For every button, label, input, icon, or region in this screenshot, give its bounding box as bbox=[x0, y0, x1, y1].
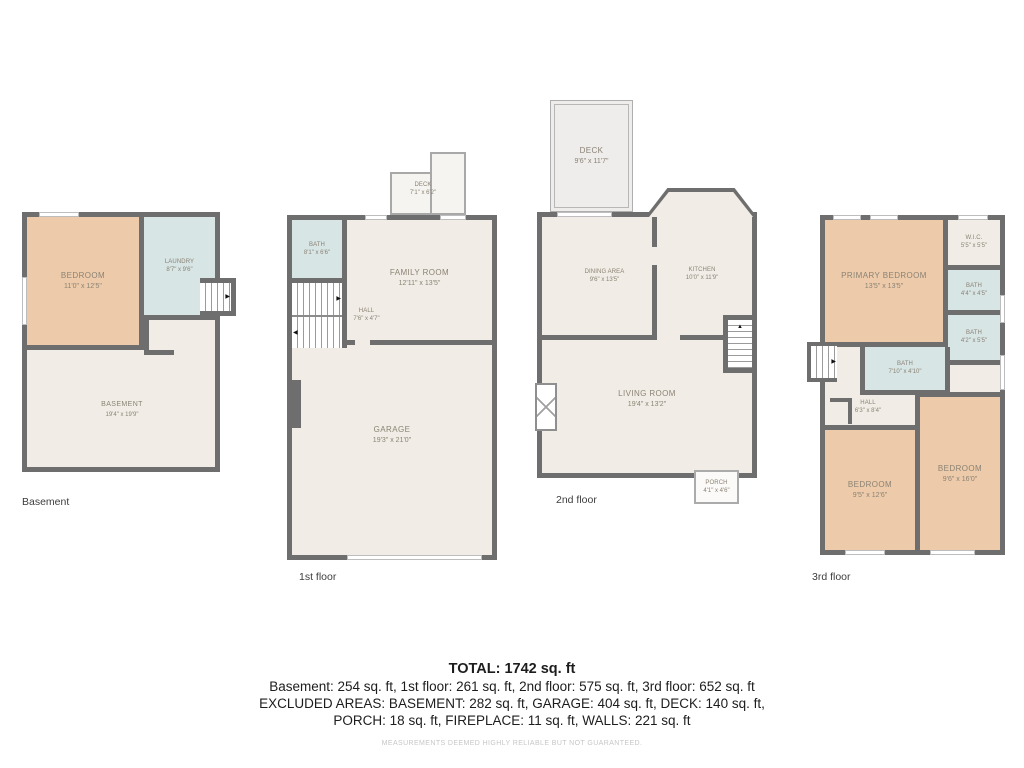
window-opening bbox=[845, 550, 885, 555]
window-opening bbox=[1000, 355, 1005, 390]
room-name: BASEMENT bbox=[32, 400, 212, 410]
room-label: PORCH 4'1" x 4'6" bbox=[703, 480, 729, 495]
room-label: BATH 7'10" x 4'10" bbox=[889, 361, 922, 376]
room-name: LAUNDRY bbox=[165, 259, 194, 266]
room-dims: 9'6" x 16'0" bbox=[938, 475, 982, 484]
room-primary-bedroom: PRIMARY BEDROOM 13'5" x 13'5" bbox=[825, 220, 948, 347]
room-name: DINING AREA bbox=[552, 269, 657, 276]
room-name: PRIMARY BEDROOM bbox=[841, 271, 927, 281]
room-name: PORCH bbox=[703, 480, 729, 487]
room-bath-center: BATH 7'10" x 4'10" bbox=[860, 347, 950, 395]
total-area-label: TOTAL: 1742 sq. ft bbox=[0, 660, 1024, 678]
room-label: FAMILY ROOM 12'11" x 13'5" bbox=[352, 268, 487, 288]
room-label: HALL 6'3" x 8'4" bbox=[833, 400, 903, 415]
room-name: LIVING ROOM bbox=[577, 389, 717, 399]
room-name: BEDROOM bbox=[61, 271, 105, 281]
window-opening bbox=[870, 215, 898, 220]
second-floor-outline: DINING AREA 9'6" x 13'5" KITCHEN 10'0" x… bbox=[537, 212, 757, 478]
room-name: BEDROOM bbox=[848, 480, 892, 490]
room-label: BEDROOM 11'0" x 12'5" bbox=[61, 271, 105, 291]
room-name: GARAGE bbox=[322, 425, 462, 435]
room-wic: W.I.C. 5'5" x 5'5" bbox=[948, 220, 1000, 270]
room-dims: 5'5" x 5'5" bbox=[961, 243, 987, 250]
room-dims: 8'7" x 9'6" bbox=[165, 267, 194, 274]
room-name: W.I.C. bbox=[961, 235, 987, 242]
window-opening bbox=[833, 215, 861, 220]
wall-segment bbox=[292, 380, 301, 428]
deck: DECK 9'6" x 11'7" bbox=[550, 100, 633, 212]
room-first-bath: BATH 8'1" x 6'6" bbox=[292, 220, 347, 283]
room-dims: 6'3" x 8'4" bbox=[833, 408, 903, 415]
third-floor-plan: PRIMARY BEDROOM 13'5" x 13'5" W.I.C. 5'5… bbox=[820, 215, 1012, 562]
garage-door-opening bbox=[347, 555, 482, 560]
room-name: DECK bbox=[575, 146, 609, 156]
room-dims: 8'1" x 6'6" bbox=[304, 250, 330, 257]
room-label: BASEMENT 19'4" x 19'9" bbox=[32, 400, 212, 420]
room-bedroom-right: BEDROOM 9'6" x 16'0" bbox=[915, 392, 1000, 550]
room-label: BEDROOM 9'5" x 12'6" bbox=[848, 480, 892, 500]
window-opening bbox=[930, 550, 975, 555]
door-opening bbox=[440, 215, 466, 220]
second-floor-stairs: ▲ bbox=[723, 315, 752, 373]
third-floor-outline: PRIMARY BEDROOM 13'5" x 13'5" W.I.C. 5'5… bbox=[820, 215, 1005, 555]
room-label: W.I.C. 5'5" x 5'5" bbox=[961, 235, 987, 250]
room-dims: 19'4" x 19'9" bbox=[32, 411, 212, 420]
room-dims: 11'0" x 12'5" bbox=[61, 282, 105, 291]
floor-caption-basement: Basement bbox=[22, 496, 69, 508]
first-floor-outline: BATH 8'1" x 6'6" FAMILY ROOM 12'11" x 13… bbox=[287, 215, 497, 560]
fireplace-icon bbox=[535, 383, 557, 431]
room-name: HALL bbox=[344, 308, 389, 315]
disclaimer-text: MEASUREMENTS DEEMED HIGHLY RELIABLE BUT … bbox=[0, 740, 1024, 747]
basement-outline: BEDROOM 11'0" x 12'5" LAUNDRY 8'7" x 9'6… bbox=[22, 212, 220, 472]
room-name: BATH bbox=[961, 330, 987, 337]
wall-segment bbox=[144, 350, 174, 355]
room-label: BATH 8'1" x 6'6" bbox=[304, 242, 330, 257]
room-bedroom-left: BEDROOM 9'5" x 12'6" bbox=[825, 425, 920, 550]
room-label: PRIMARY BEDROOM 13'5" x 13'5" bbox=[841, 271, 927, 291]
room-name: KITCHEN bbox=[657, 267, 747, 274]
floor-areas-line: Basement: 254 sq. ft, 1st floor: 261 sq.… bbox=[0, 678, 1024, 695]
stairs-direction-arrow-icon: ▶ bbox=[225, 294, 230, 300]
stairs-direction-arrow-icon: ▶ bbox=[831, 359, 836, 365]
kitchen-bay-floor bbox=[649, 192, 753, 217]
room-dims: 9'5" x 12'6" bbox=[848, 491, 892, 500]
window-opening bbox=[1000, 295, 1005, 323]
room-label: DINING AREA 9'6" x 13'5" bbox=[552, 269, 657, 284]
wall-segment bbox=[347, 340, 355, 345]
deck-floor bbox=[433, 174, 464, 213]
window-opening bbox=[365, 215, 387, 220]
floor-caption-second: 2nd floor bbox=[556, 494, 597, 506]
wall-segment bbox=[848, 398, 852, 424]
room-label: BATH 4'4" x 4'5" bbox=[961, 283, 987, 298]
wall-segment bbox=[342, 283, 347, 348]
floor-plan-sheet: BEDROOM 11'0" x 12'5" LAUNDRY 8'7" x 9'6… bbox=[0, 0, 1024, 768]
room-name: FAMILY ROOM bbox=[352, 268, 487, 278]
room-label: GARAGE 19'3" x 21'0" bbox=[322, 425, 462, 445]
room-name: BATH bbox=[304, 242, 330, 249]
porch: PORCH 4'1" x 4'6" bbox=[694, 470, 739, 504]
window-opening bbox=[958, 215, 988, 220]
stairs-down: ◀ bbox=[292, 317, 342, 348]
room-dims: 10'0" x 11'9" bbox=[657, 275, 747, 282]
room-label: LAUNDRY 8'7" x 9'6" bbox=[165, 259, 194, 274]
room-label: LIVING ROOM 19'4" x 13'2" bbox=[577, 389, 717, 409]
room-dims: 4'2" x 5'5" bbox=[961, 338, 987, 345]
room-bath-upper: BATH 4'4" x 4'5" bbox=[948, 270, 1000, 315]
basement-stairs: ▶ bbox=[200, 278, 236, 316]
basement-plan: BEDROOM 11'0" x 12'5" LAUNDRY 8'7" x 9'6… bbox=[22, 212, 236, 474]
first-floor-plan: DECK 7'1" x 6'2" BATH 8'1" x 6'6" FAMILY… bbox=[287, 152, 502, 564]
room-dims: 9'6" x 11'7" bbox=[575, 157, 609, 166]
room-label: KITCHEN 10'0" x 11'9" bbox=[657, 267, 747, 282]
room-dims: 7'10" x 4'10" bbox=[889, 369, 922, 376]
window-opening bbox=[557, 212, 612, 217]
room-dims: 19'3" x 21'0" bbox=[322, 436, 462, 445]
room-dims: 4'1" x 4'6" bbox=[703, 488, 729, 495]
wall-segment bbox=[370, 340, 492, 345]
room-name: BATH bbox=[961, 283, 987, 290]
room-dims: 7'6" x 4'7" bbox=[344, 316, 389, 323]
wall-segment bbox=[652, 265, 657, 340]
room-bath-middle: BATH 4'2" x 5'5" bbox=[948, 315, 1000, 365]
room-dims: 19'4" x 13'2" bbox=[577, 400, 717, 409]
room-name: BEDROOM bbox=[938, 464, 982, 474]
window-opening bbox=[39, 212, 79, 217]
third-floor-stairs: ▶ bbox=[807, 342, 837, 382]
room-dims: 4'4" x 4'5" bbox=[961, 291, 987, 298]
room-basement-bedroom: BEDROOM 11'0" x 12'5" bbox=[27, 217, 144, 350]
stairs-direction-arrow-icon: ◀ bbox=[293, 330, 298, 336]
stairs-up: ▶ bbox=[292, 283, 342, 315]
window-opening bbox=[22, 277, 27, 325]
kitchen-bay-window bbox=[645, 188, 757, 217]
wall-segment bbox=[542, 335, 655, 340]
second-floor-plan: DECK 9'6" x 11'7" DINING AREA 9'6" x 13'… bbox=[537, 100, 759, 510]
floor-caption-first: 1st floor bbox=[299, 571, 336, 583]
wall-segment bbox=[652, 217, 657, 247]
excluded-areas-line-1: EXCLUDED AREAS: BASEMENT: 282 sq. ft, GA… bbox=[0, 695, 1024, 712]
room-dims: 9'6" x 13'5" bbox=[552, 277, 657, 284]
room-label: HALL 7'6" x 4'7" bbox=[344, 308, 389, 323]
floor-caption-third: 3rd floor bbox=[812, 571, 851, 583]
room-label: BATH 4'2" x 5'5" bbox=[961, 330, 987, 345]
excluded-areas-line-2: PORCH: 18 sq. ft, FIREPLACE: 11 sq. ft, … bbox=[0, 712, 1024, 729]
stairs-direction-arrow-icon: ▲ bbox=[737, 324, 743, 330]
room-name: BATH bbox=[889, 361, 922, 368]
area-summary: TOTAL: 1742 sq. ft Basement: 254 sq. ft,… bbox=[0, 660, 1024, 747]
stairs-direction-arrow-icon: ▶ bbox=[336, 296, 341, 302]
room-label: DECK 9'6" x 11'7" bbox=[575, 146, 609, 166]
room-label: BEDROOM 9'6" x 16'0" bbox=[938, 464, 982, 484]
room-dims: 13'5" x 13'5" bbox=[841, 282, 927, 291]
room-dims: 12'11" x 13'5" bbox=[352, 279, 487, 288]
